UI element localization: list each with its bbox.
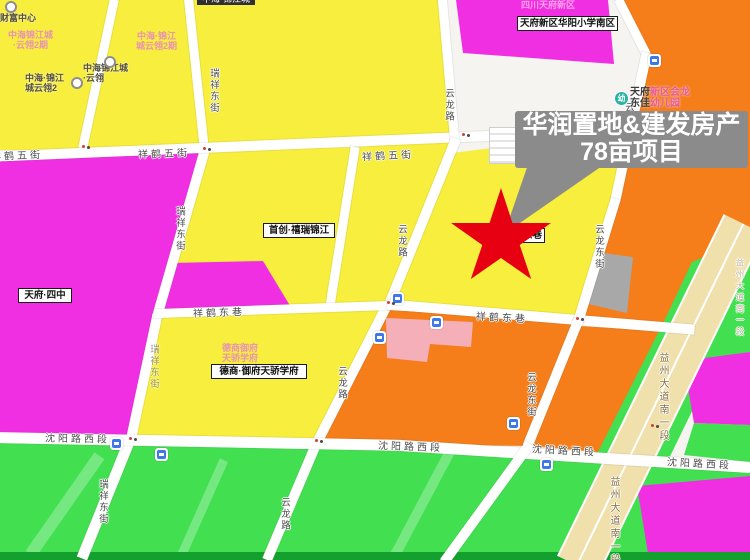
zhonghai-yunling-poi-a-icon — [71, 77, 83, 89]
faint-label: 中海锦江城 ·云翎2期 — [8, 30, 53, 50]
wealth-center-poi: 财富中心 — [0, 13, 36, 23]
top-clipped-label-text: 中海·锦江城 — [202, 0, 250, 4]
project-callout: 华润置地&建发房产 78亩项目 — [515, 111, 748, 168]
road-label: 祥鹤五街 — [138, 144, 190, 161]
junction-marker — [576, 317, 585, 321]
junction-marker — [315, 439, 324, 443]
road-label: 益州大道南一段 — [734, 258, 746, 339]
road-label: 瑞祥东街 — [206, 68, 220, 114]
bus-stop-icon — [373, 331, 386, 344]
deshang-label: 德商·御府天骄学府 — [211, 364, 307, 379]
school-south-label: 天府新区华阳小学南区 — [517, 16, 618, 31]
bus-stop-icon — [540, 458, 553, 471]
kindergarten-poi-label: 天府新区会龙 东佳幼儿园 — [630, 87, 690, 109]
wealth-center-poi-icon — [5, 1, 17, 13]
road-label: 云龙东街 — [523, 372, 537, 418]
top-clipped-label: 中海·锦江城 — [197, 0, 255, 5]
faint-label: 四川天府新区 — [521, 0, 575, 10]
kindergarten-label-part: 幼儿园 — [650, 98, 680, 109]
zhonghai-yunling-poi-b-icon — [104, 56, 116, 68]
road-label: 益州大道南一段 — [606, 476, 621, 560]
bottom-edge-strip — [0, 552, 750, 560]
kindergarten-icon: 幼 — [614, 91, 629, 106]
tianfu-no4-label: 天府·四中 — [18, 288, 72, 303]
callout-line2: 78亩项目 — [515, 139, 748, 166]
bus-stop-icon — [648, 54, 661, 67]
shouchuang-label: 首创·禧瑞锦江 — [263, 223, 335, 238]
road-label: 瑞祥东街 — [95, 479, 109, 525]
road-label: 沈阳路西段 — [378, 437, 443, 454]
road-label: 瑞祥东街 — [172, 206, 186, 252]
road-label: 沈阳路西段 — [45, 429, 110, 445]
road-label: 祥鹤东巷 — [193, 303, 245, 320]
road-label: 益州大道南一段 — [655, 352, 670, 443]
road-label: 祥鹤五街 — [0, 146, 43, 163]
bus-stop-icon — [430, 316, 443, 329]
kindergarten-label-part: 东佳 — [630, 98, 650, 109]
kindergarten-label-part: 新区会龙 — [650, 87, 690, 98]
map-canvas[interactable]: 中海·锦江城 幼 天府新区会龙 东佳幼儿园 祥鹤五街祥鹤五街祥鹤五街祥鹤东巷祥鹤… — [0, 0, 750, 560]
junction-marker — [203, 147, 212, 151]
road-label: 云龙路 — [441, 88, 455, 123]
bus-stop-icon — [155, 448, 168, 461]
road-label: 云龙东街 — [591, 224, 605, 270]
road-label: 云龙路 — [277, 497, 291, 532]
kindergarten-icon-glyph: 幼 — [618, 94, 626, 103]
road-label: 祥鹤五街 — [362, 146, 415, 164]
junction-marker — [129, 437, 138, 441]
junction-marker — [462, 133, 471, 137]
faint-label: 德商御府 天骄学府 — [222, 343, 258, 363]
road-label: 瑞祥东街 — [146, 344, 160, 390]
faint-label: 中海·锦江 城云翎2期 — [136, 31, 177, 51]
zhonghai-yunling-poi-a: 中海·锦江 城云翎2 — [25, 73, 64, 93]
bus-stop-icon — [110, 437, 123, 450]
junction-marker — [651, 424, 660, 428]
junction-marker — [387, 301, 396, 305]
road-label: 云龙路 — [394, 224, 408, 259]
road-label: 祥鹤东巷 — [476, 308, 529, 326]
road-label: 云龙路 — [334, 366, 348, 401]
kindergarten-label-part: 天府 — [630, 87, 650, 98]
bus-stop-icon — [507, 417, 520, 430]
junction-marker — [82, 145, 91, 149]
callout-line1: 华润置地&建发房产 — [515, 112, 748, 139]
